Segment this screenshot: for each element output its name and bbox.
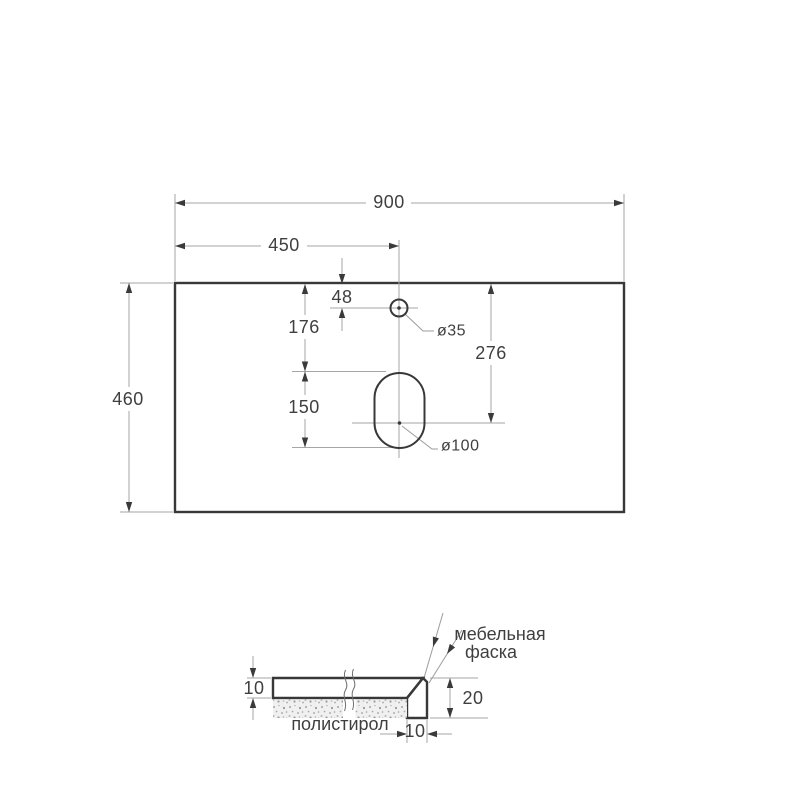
faucet-hole-leader [405, 314, 434, 331]
top-view: 900 450 460 48 176 150 276 ø35 ø100 [112, 192, 624, 512]
dim-edge-height: 20 [462, 688, 483, 708]
dim-overall-depth: 460 [112, 389, 144, 409]
break-lines [343, 669, 356, 718]
label-chamfer-line1: мебельная [454, 624, 545, 644]
faucet-hole-center [397, 306, 401, 310]
drawing-canvas: 900 450 460 48 176 150 276 ø35 ø100 [0, 0, 800, 800]
label-faucet-hole-diameter: ø35 [437, 323, 466, 340]
section-view: 10 20 10 полистирол мебельная фаска [243, 613, 545, 743]
technical-drawing: 900 450 460 48 176 150 276 ø35 ø100 [0, 0, 800, 800]
dim-slot-length: 150 [288, 397, 320, 417]
dim-center-offset: 450 [268, 235, 300, 255]
label-chamfer-line2: фаска [465, 642, 518, 662]
edge-profile [407, 678, 427, 718]
top-view-arrows [126, 200, 624, 512]
dim-faucet-offset: 48 [331, 287, 352, 307]
top-view-dimension-lines [120, 194, 624, 512]
dim-overall-width: 900 [373, 192, 405, 212]
label-polystyrene: полистирол [291, 714, 388, 734]
label-drain-slot-diameter: ø100 [441, 438, 479, 455]
dim-slot-center-offset: 276 [475, 343, 507, 363]
dim-edge-width: 10 [404, 721, 425, 741]
drain-slot-center [398, 421, 402, 425]
dim-slab-thickness: 10 [243, 678, 264, 698]
dim-slot-top-offset: 176 [288, 317, 320, 337]
